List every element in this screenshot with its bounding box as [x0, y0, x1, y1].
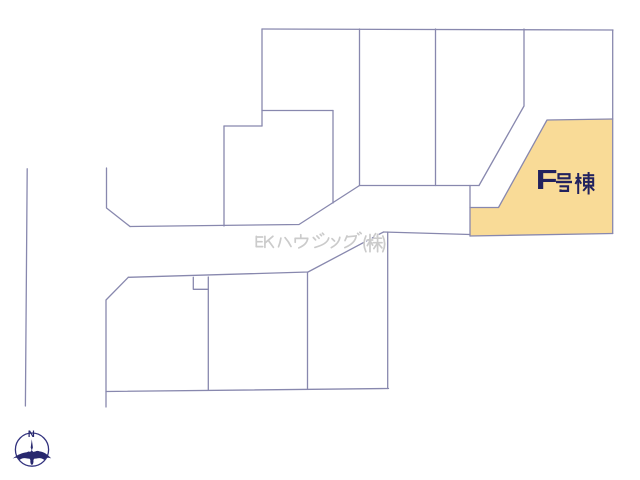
svg-text:N: N	[28, 429, 35, 440]
svg-text:F: F	[536, 164, 558, 195]
